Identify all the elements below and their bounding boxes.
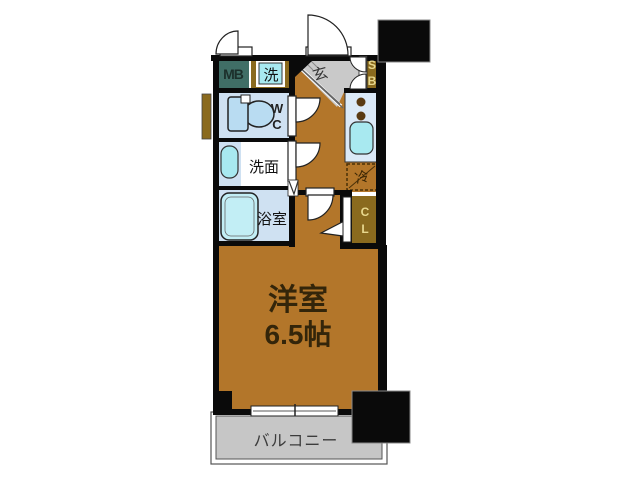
stove-burner-icon	[357, 98, 366, 107]
meter-box-label: MB	[223, 66, 244, 82]
washbasin-icon	[221, 146, 238, 178]
wall-right-upper	[376, 55, 386, 247]
kitchen-sink-icon	[350, 122, 373, 154]
floor-plan-page: MB 洗 玄 S B W C 洗面 浴室 冷 C L 洋室 6.5帖 バルコニー	[0, 0, 640, 480]
bathroom-label: 浴室	[257, 211, 287, 228]
pillar-top-right	[378, 20, 430, 62]
balcony-label: バルコニー	[254, 433, 339, 450]
shoe-box-label-b: B	[368, 74, 377, 88]
toilet-label-w: W	[271, 101, 284, 116]
wall-below-closet	[340, 243, 386, 249]
closet-label-c: C	[361, 205, 370, 219]
stove-burner-icon	[357, 112, 366, 121]
main-room-size: 6.5帖	[265, 319, 332, 350]
wall-right-lower	[378, 245, 387, 415]
toilet-doorway	[288, 96, 296, 136]
washer-label: 洗	[263, 67, 278, 84]
wall-below-bathroom	[213, 241, 294, 246]
pillar-bottom-right	[352, 391, 410, 443]
toilet-flush-icon	[241, 95, 250, 103]
closet-door	[343, 197, 351, 242]
shoe-box-label-s: S	[368, 58, 376, 72]
bathtub-icon	[221, 193, 258, 240]
wall-washroom-bathroom	[213, 186, 294, 190]
closet-label-l: L	[361, 222, 368, 236]
pipe-space	[202, 94, 211, 139]
toilet-label-c: C	[272, 117, 282, 132]
main-room-name: 洋室	[268, 283, 328, 317]
wall-toilet-washroom	[213, 138, 294, 142]
wall-below-meter-box	[213, 88, 294, 93]
washroom-doorway	[288, 141, 296, 181]
floor-plan-drawing: MB 洗 玄 S B W C 洗面 浴室 冷 C L 洋室 6.5帖 バルコニー	[0, 0, 640, 480]
pillar-bottom-left	[213, 391, 232, 415]
washroom-label: 洗面	[249, 159, 279, 176]
wall-left	[213, 55, 219, 415]
